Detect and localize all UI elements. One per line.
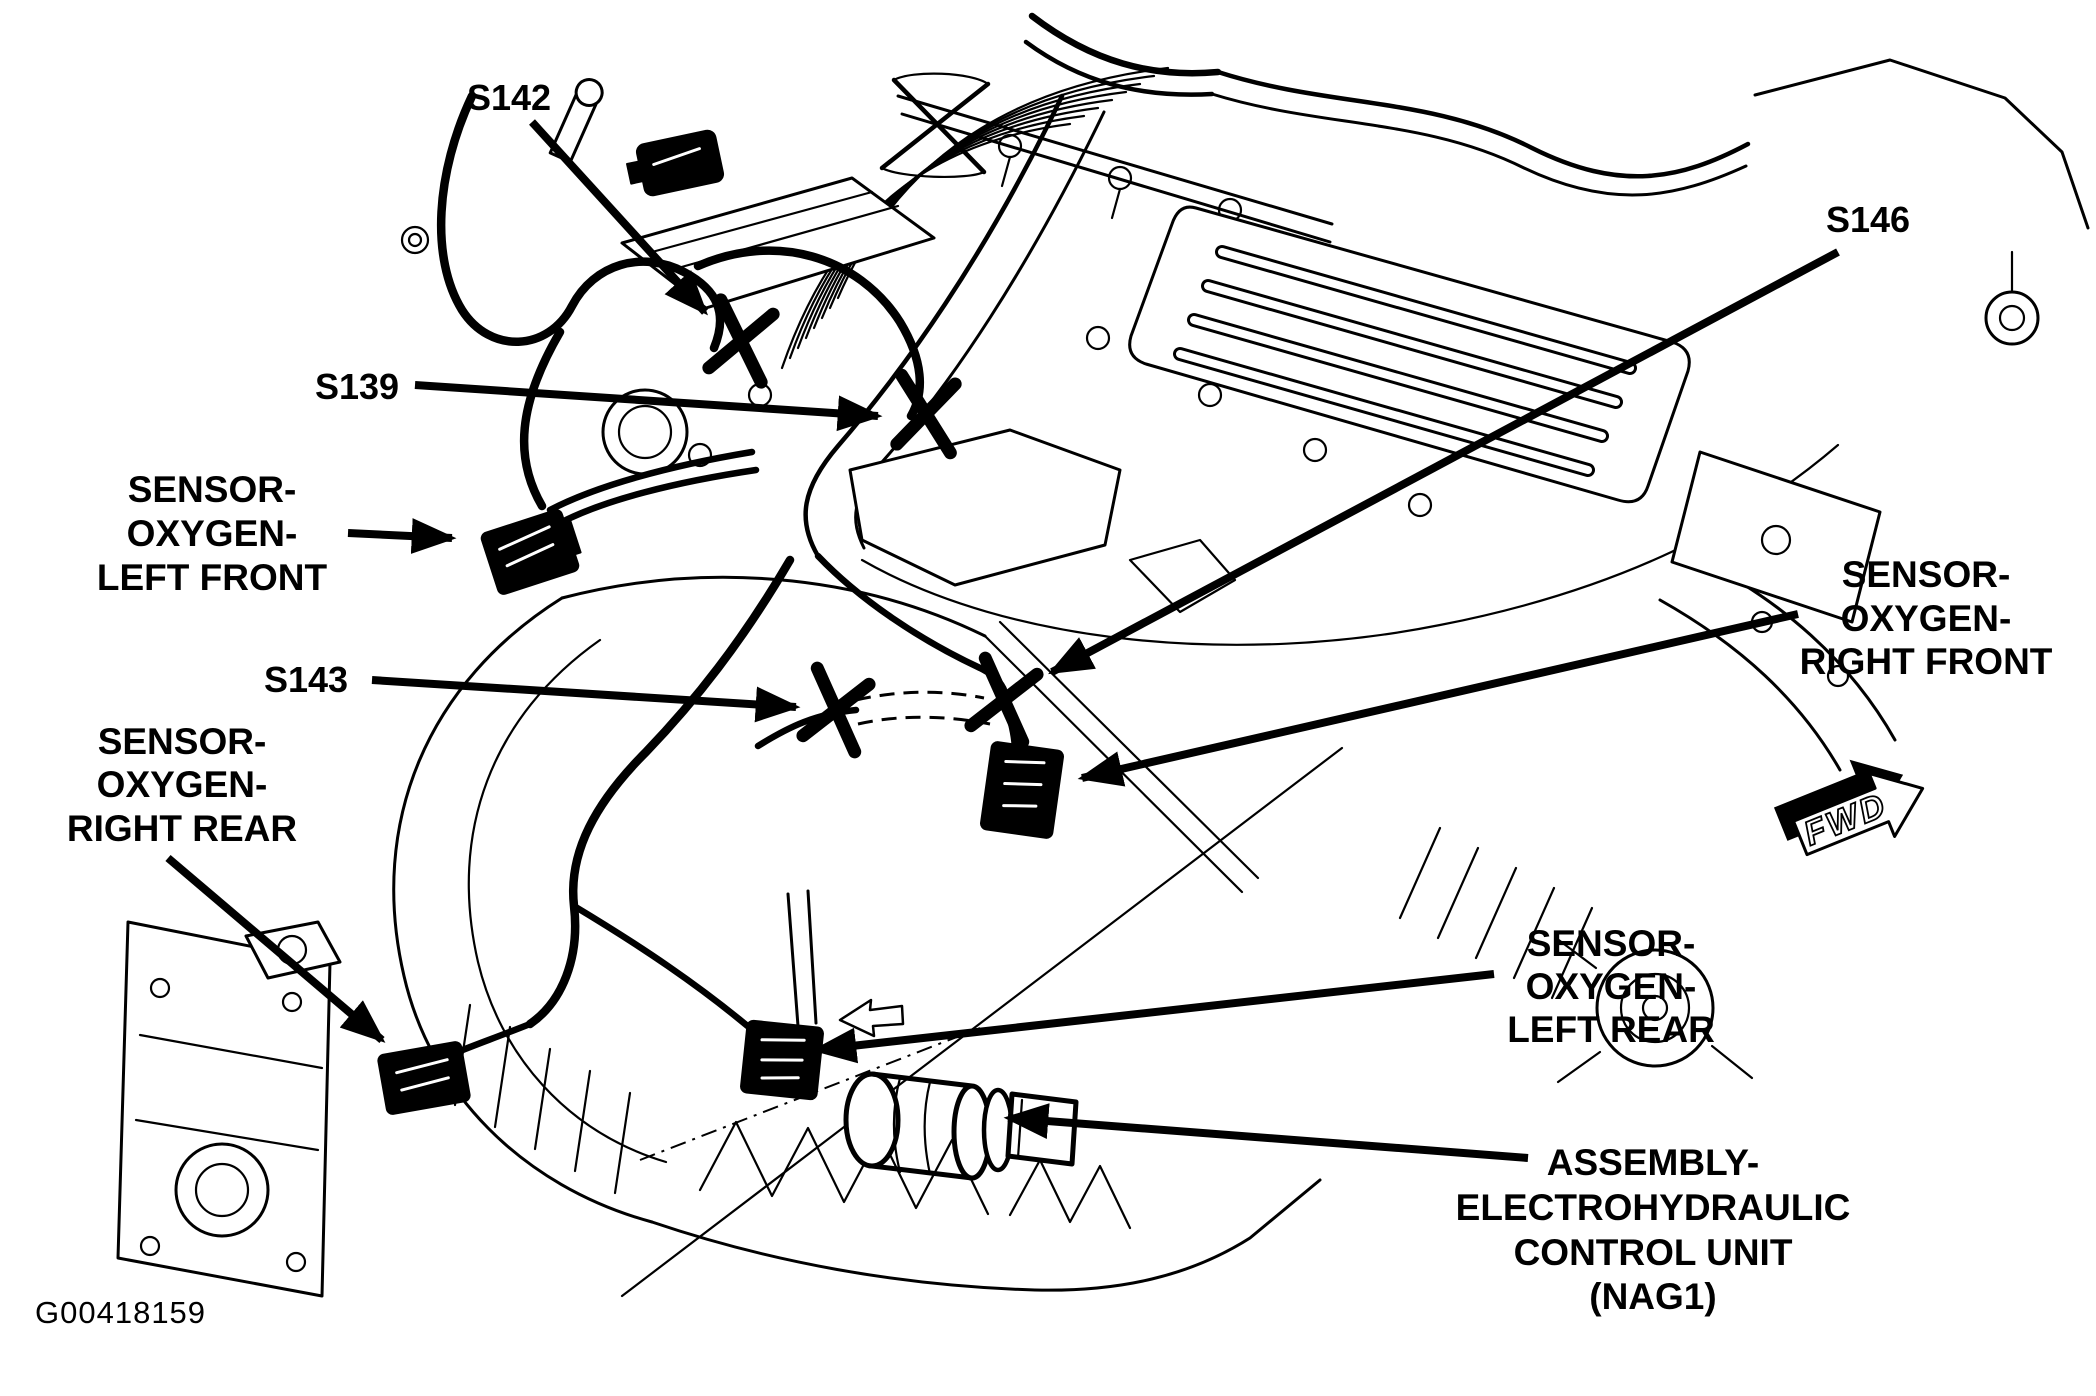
engine-harness-diagram-page: S142 S139 S143 S146 SENSOR- OXYGEN- LEFT… bbox=[0, 0, 2096, 1396]
upper-hoses bbox=[1026, 16, 1748, 195]
engine-harness-diagram: S142 S139 S143 S146 SENSOR- OXYGEN- LEFT… bbox=[0, 0, 2096, 1396]
right-front-line-2: OXYGEN- bbox=[1841, 598, 2012, 639]
engine-artwork bbox=[118, 16, 2088, 1296]
assembly-line-1: ASSEMBLY- bbox=[1547, 1142, 1759, 1183]
label-sensor-oxygen-left-front: SENSOR- OXYGEN- LEFT FRONT bbox=[97, 469, 328, 598]
splice-label-s143: S143 bbox=[264, 659, 348, 700]
assembly-line-2: ELECTROHYDRAULIC bbox=[1456, 1187, 1851, 1228]
electrohydraulic-control-unit bbox=[846, 1074, 1076, 1178]
right-rear-line-1: SENSOR- bbox=[98, 721, 267, 762]
assembly-line-3: CONTROL UNIT bbox=[1514, 1232, 1793, 1273]
left-rear-line-1: SENSOR- bbox=[1527, 923, 1696, 964]
splice-label-s139: S139 bbox=[315, 366, 399, 407]
right-rear-o2-connector bbox=[377, 1041, 470, 1115]
hollow-arrow-icon bbox=[840, 1000, 903, 1036]
splice-x-s139 bbox=[896, 375, 955, 453]
splice-label-s142: S142 bbox=[467, 77, 551, 118]
label-sensor-oxygen-left-rear: SENSOR- OXYGEN- LEFT REAR bbox=[1507, 923, 1715, 1050]
left-front-line-1: SENSOR- bbox=[128, 469, 297, 510]
splice-x-s143 bbox=[802, 668, 870, 752]
assembly-line-4: (NAG1) bbox=[1589, 1276, 1716, 1317]
left-front-line-2: OXYGEN- bbox=[127, 513, 298, 554]
right-rear-line-3: RIGHT REAR bbox=[67, 808, 297, 849]
leader-assembly bbox=[1008, 1118, 1528, 1158]
label-sensor-oxygen-right-rear: SENSOR- OXYGEN- RIGHT REAR bbox=[67, 721, 297, 849]
right-front-o2-connector bbox=[980, 741, 1064, 838]
left-front-o2-connector bbox=[480, 507, 585, 596]
right-front-line-3: RIGHT FRONT bbox=[1800, 641, 2053, 682]
left-rear-line-2: OXYGEN- bbox=[1526, 966, 1697, 1007]
ignition-connector bbox=[624, 129, 725, 199]
splice-label-s146: S146 bbox=[1826, 199, 1910, 240]
valve-cover-right bbox=[1130, 207, 1690, 502]
leader-left-front bbox=[348, 533, 452, 538]
drawing-number: G00418159 bbox=[35, 1295, 206, 1330]
fwd-arrow: FWD bbox=[1768, 738, 1935, 874]
right-rear-line-2: OXYGEN- bbox=[97, 764, 268, 805]
leader-s143 bbox=[372, 680, 796, 707]
label-assembly-electrohydraulic: ASSEMBLY- ELECTROHYDRAULIC CONTROL UNIT … bbox=[1456, 1142, 1851, 1317]
left-front-line-3: LEFT FRONT bbox=[97, 557, 328, 598]
right-front-line-1: SENSOR- bbox=[1842, 554, 2011, 595]
left-rear-o2-connector bbox=[740, 1020, 823, 1100]
leader-left-rear bbox=[816, 974, 1494, 1050]
left-rear-line-3: LEFT REAR bbox=[1507, 1009, 1715, 1050]
leader-right-front bbox=[1082, 614, 1798, 778]
